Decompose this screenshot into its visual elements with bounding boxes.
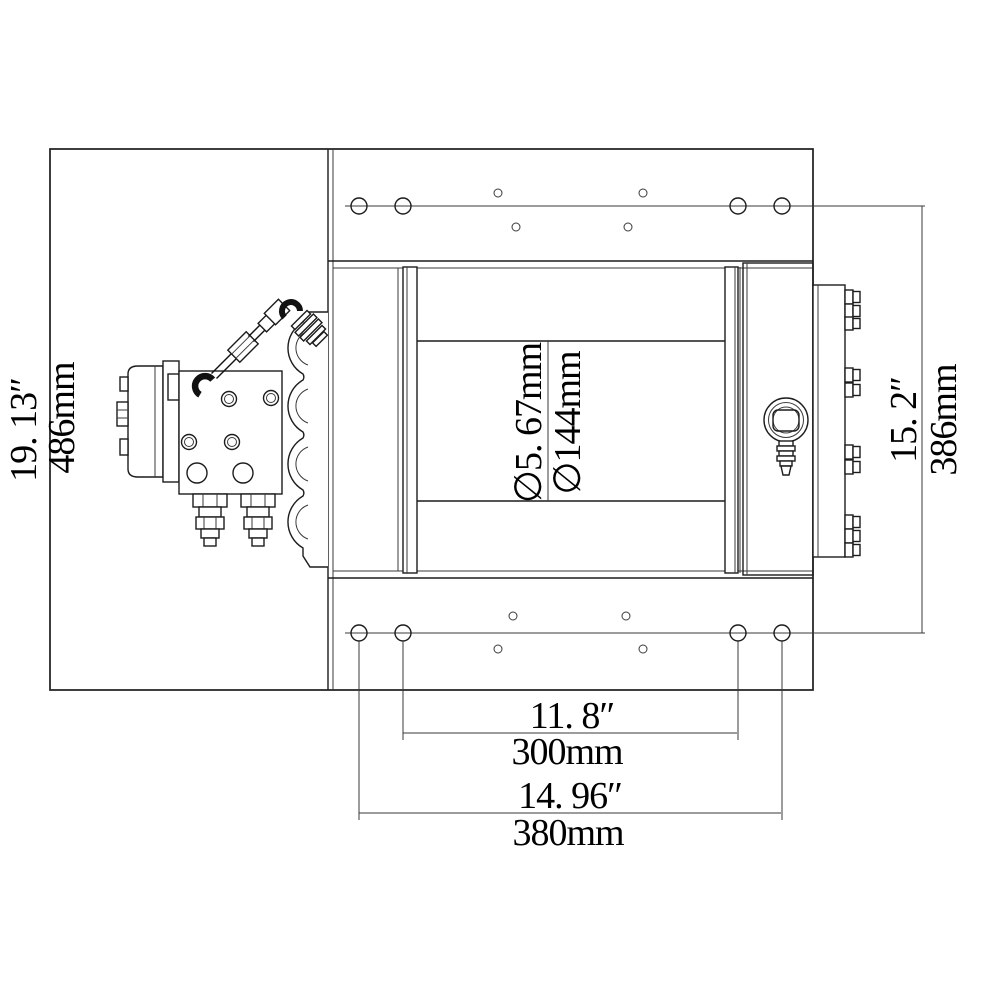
dim-bolt-outer-mm: 380mm: [512, 812, 624, 854]
bottom-mounting-plate-holes: [345, 612, 925, 653]
top-small-hole-4: [624, 223, 632, 231]
gear-housing: [743, 263, 860, 575]
drum-left-flange: [403, 267, 417, 573]
dim-frame-height-mm: 486mm: [41, 362, 83, 474]
winch-dimension-drawing: 19. 13″ 486mm ∅5. 67mm ∅144mm 15. 2″ 386…: [0, 0, 1000, 1000]
hose-elbow-upper: [282, 302, 300, 317]
tie-bracket: [288, 312, 328, 567]
top-small-hole-1: [494, 189, 502, 197]
top-mounting-plate-holes: [345, 189, 925, 231]
motor-tab-3: [120, 439, 128, 455]
dim-drum-diameter-mm: ∅144mm: [547, 351, 589, 495]
hose-nut: [228, 332, 258, 362]
bottom-small-hole-4: [639, 645, 647, 653]
cap-bolt: [845, 460, 860, 474]
cap-bolt: [845, 515, 860, 529]
hex-plug: [764, 398, 808, 442]
top-small-hole-2: [639, 189, 647, 197]
bottom-small-hole-1: [509, 612, 517, 620]
motor-port-boss: [168, 374, 179, 400]
cap-bolt: [845, 368, 860, 382]
dim-bolt-inner-mm: 300mm: [511, 731, 623, 773]
cap-bolt: [845, 529, 860, 543]
bottom-small-hole-2: [622, 612, 630, 620]
dim-mount-span-inch: 15. 2″: [883, 377, 925, 463]
dim-drum-diameter-inch: ∅5. 67mm: [508, 342, 550, 503]
cap-bolts: [845, 290, 860, 557]
cap-bolt: [845, 445, 860, 459]
cap-bolt: [845, 290, 860, 304]
motor-end-cap: [128, 366, 163, 477]
bottom-fitting-2: [241, 494, 275, 546]
cap-bolt: [845, 383, 860, 397]
vent-fitting: [777, 441, 795, 475]
dim-frame-height-inch: 19. 13″: [3, 378, 45, 482]
drawing-canvas: 19. 13″ 486mm ∅5. 67mm ∅144mm 15. 2″ 386…: [0, 0, 1000, 1000]
motor-tab-2: [117, 402, 128, 426]
cap-bolt: [845, 543, 860, 557]
cap-bolt: [845, 317, 860, 330]
motor-tab-1: [120, 377, 128, 391]
hose-tube: [212, 352, 234, 374]
dim-bolt-outer-inch: 14. 96″: [518, 775, 622, 817]
dim-mount-span-mm: 386mm: [923, 364, 965, 476]
drum-right-flange: [725, 267, 738, 573]
bottom-small-hole-3: [494, 645, 502, 653]
cap-bolt: [845, 304, 860, 318]
bottom-fitting-1: [193, 494, 227, 546]
top-small-hole-3: [512, 223, 520, 231]
bracket-scalloped-edge: [288, 312, 328, 567]
